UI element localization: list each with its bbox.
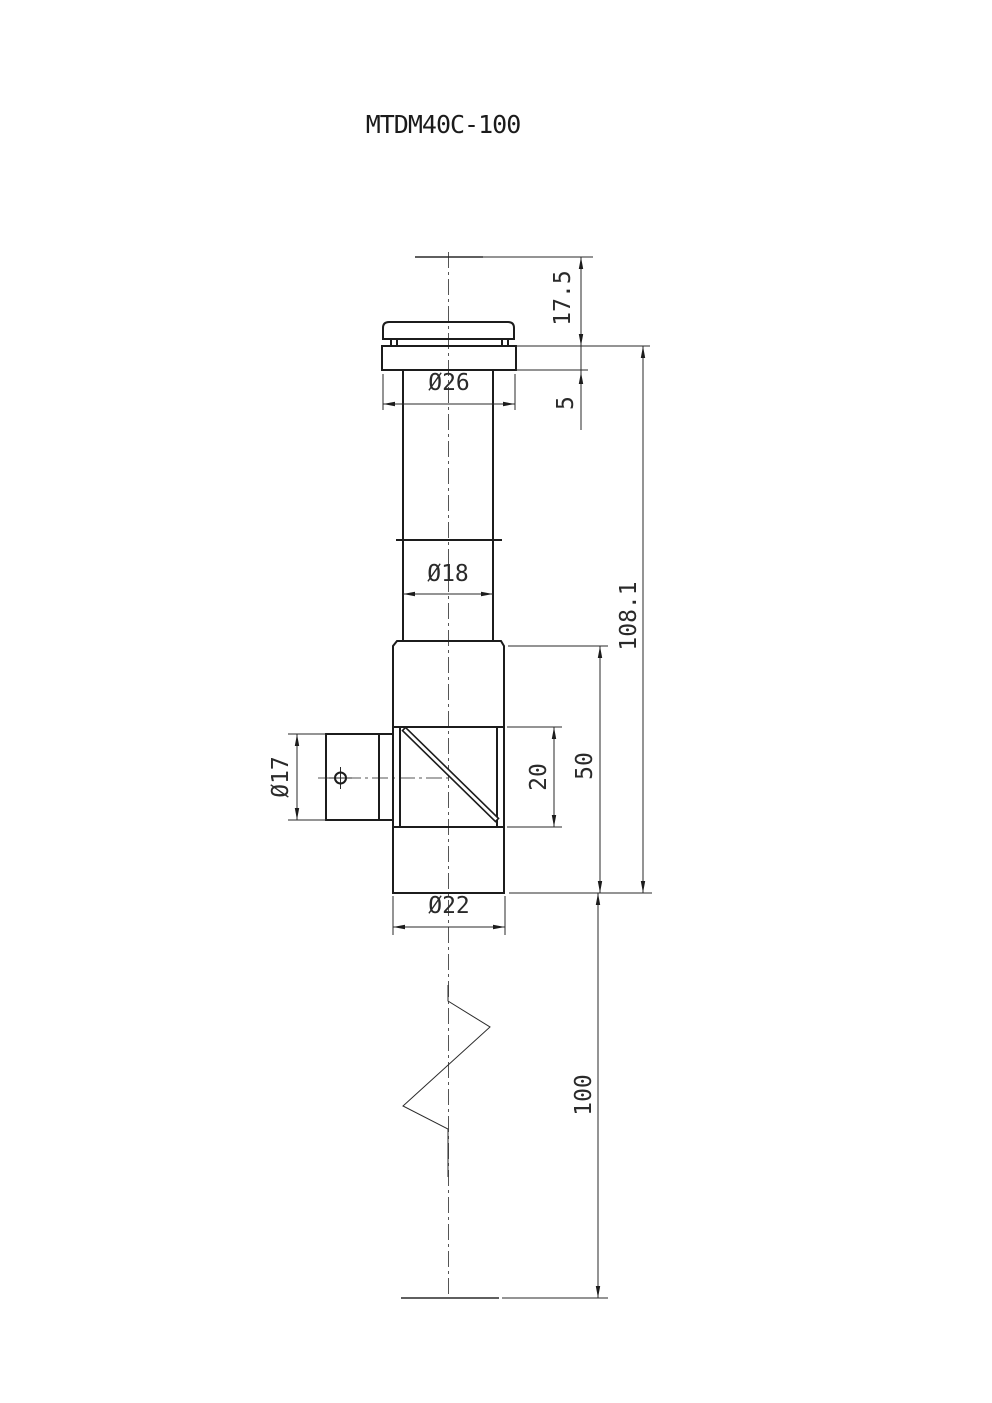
drawing-title: MTDM40C-100 [366,110,521,139]
drawing-sheet: MTDM40C-100 [0,0,992,1403]
dim-label-top-offset: 17.5 [550,270,576,325]
dimension-body-height: 50 [508,646,608,893]
centerlines [318,252,456,1298]
technical-drawing: MTDM40C-100 [0,0,992,1403]
dim-label-extension-length: 100 [571,1074,597,1116]
dim-label-flange-diameter: Ø26 [428,370,470,396]
dimension-extension-length: 100 [571,893,600,1298]
dim-label-overall-height: 108.1 [616,581,642,650]
dim-label-tube-diameter: Ø18 [427,561,469,587]
dim-label-flange-thickness: 5 [553,396,579,410]
dim-label-port-diameter: Ø17 [268,756,294,798]
dim-label-window-height: 20 [526,763,552,791]
dimension-window-height: 20 [507,727,562,827]
part-outline [326,322,516,893]
dim-label-body-diameter: Ø22 [428,893,470,919]
dimension-top-offset: 17.5 5 [516,257,650,430]
break-zigzag [403,985,490,1177]
dimension-port-diameter: Ø17 [268,734,326,820]
dim-label-body-height: 50 [572,752,598,780]
beamsplitter-plate [403,727,499,821]
